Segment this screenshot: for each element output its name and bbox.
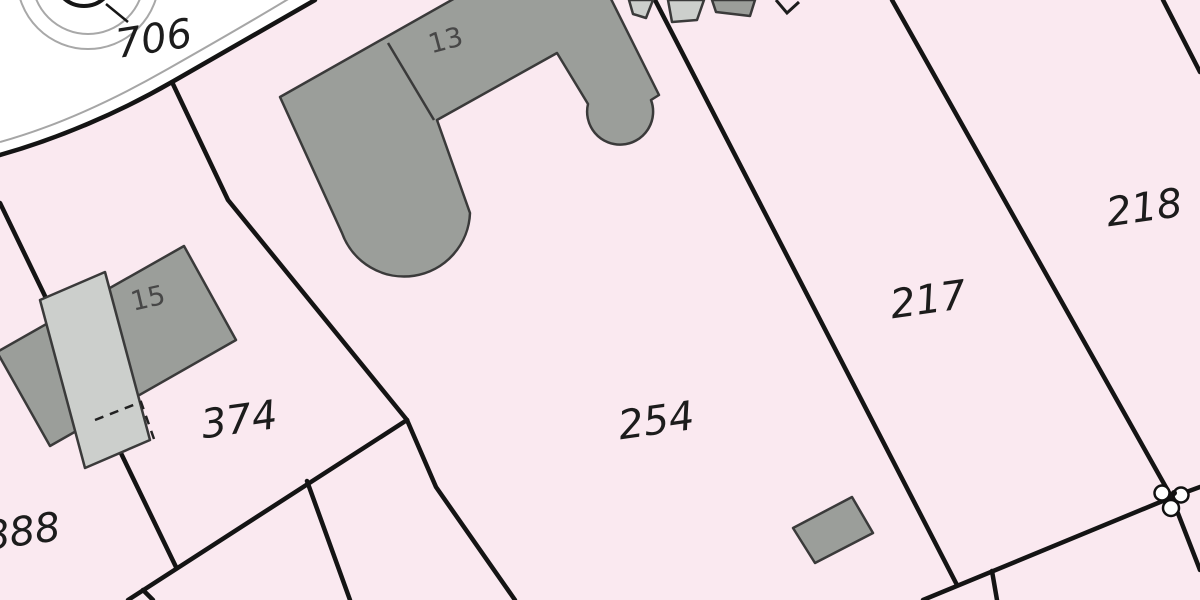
building-top-edge-2: [668, 0, 704, 22]
cadastral-map-canvas[interactable]: 706 374 888 254 217 218 13 15: [0, 0, 1200, 600]
